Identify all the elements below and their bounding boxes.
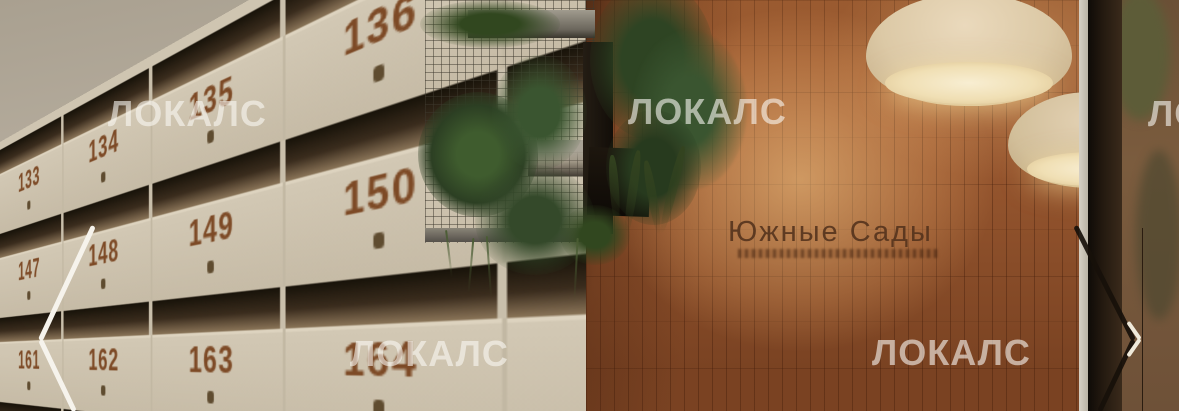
watermark: ЛОКАЛС — [1148, 96, 1179, 132]
mailbox-keyhole — [207, 391, 214, 404]
prev-photo-arrow[interactable] — [20, 210, 110, 411]
pendant-lamp-1 — [866, 0, 1072, 106]
chevron-left-icon — [38, 339, 77, 411]
watermark: ЛОКАЛС — [628, 94, 787, 130]
chevron-left-icon — [38, 225, 96, 341]
watermark: ЛОКАЛС — [108, 96, 267, 132]
mailbox-number: 133 — [18, 160, 40, 199]
lamp-glow-rim — [885, 62, 1053, 104]
next-photo-arrow[interactable] — [1060, 210, 1160, 411]
plant-foliage — [420, 0, 560, 48]
mailbox-number: 136 — [343, 0, 418, 68]
mailbox-door: 163 — [152, 329, 282, 411]
mailbox-number: 163 — [189, 339, 234, 383]
mailbox-keyhole — [101, 171, 105, 183]
watermark: ЛОКАЛС — [872, 335, 1031, 371]
plant-foliage — [492, 55, 587, 170]
building-sign: Южные Сады — [728, 216, 968, 249]
mailbox-keyhole — [27, 200, 30, 210]
building-sign-subtitle-blur — [738, 249, 938, 258]
watermark: ЛОКАЛС — [350, 336, 509, 372]
mailbox-keyhole — [373, 232, 384, 250]
mailbox-keyhole — [373, 400, 384, 411]
mailbox-number: 149 — [189, 204, 234, 256]
mailbox-keyhole — [373, 63, 384, 83]
listing-photo[interactable]: 1331341351361371381391401411421431441451… — [0, 0, 1179, 411]
mailbox-number: 150 — [343, 157, 418, 227]
mailbox-keyhole — [207, 260, 214, 273]
